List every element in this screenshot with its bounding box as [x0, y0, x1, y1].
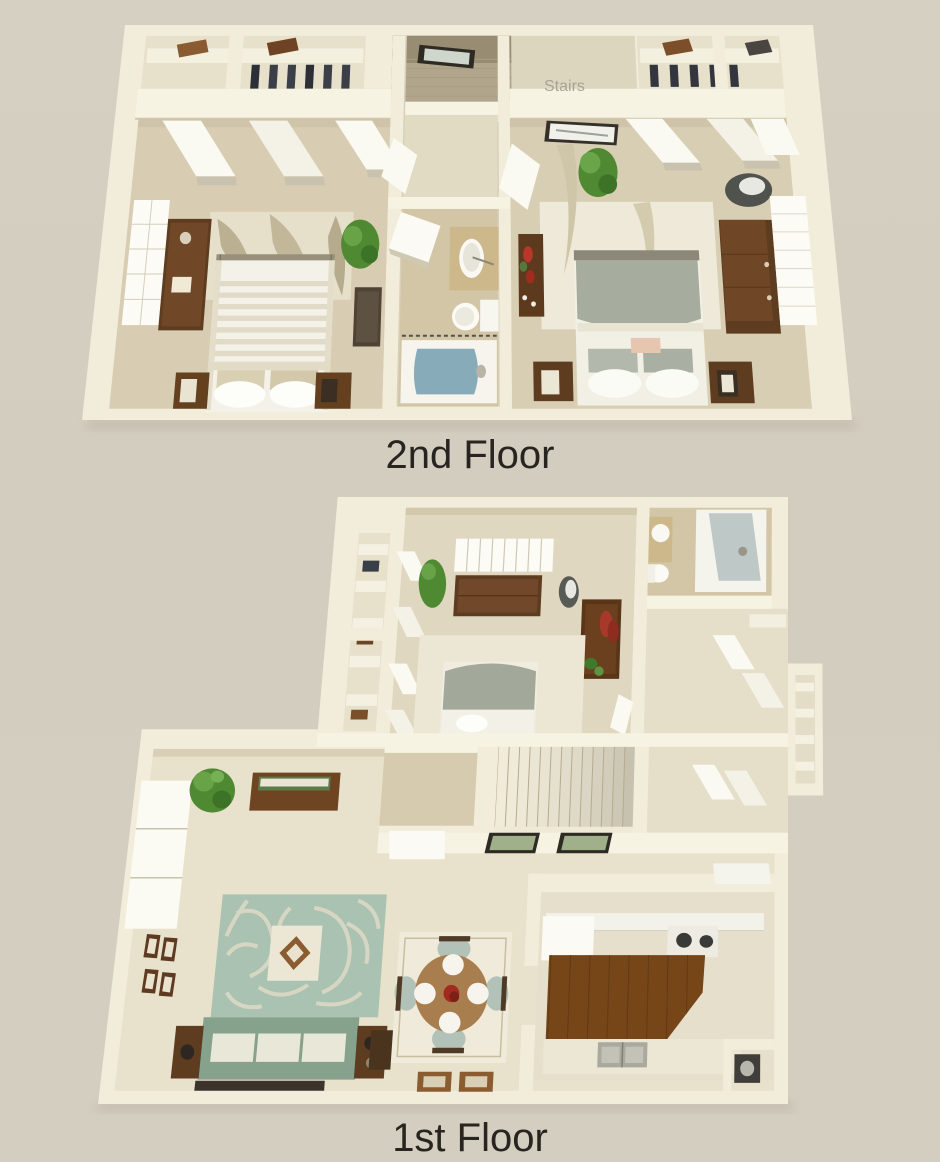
svg-text:Stairs: Stairs	[544, 78, 585, 95]
